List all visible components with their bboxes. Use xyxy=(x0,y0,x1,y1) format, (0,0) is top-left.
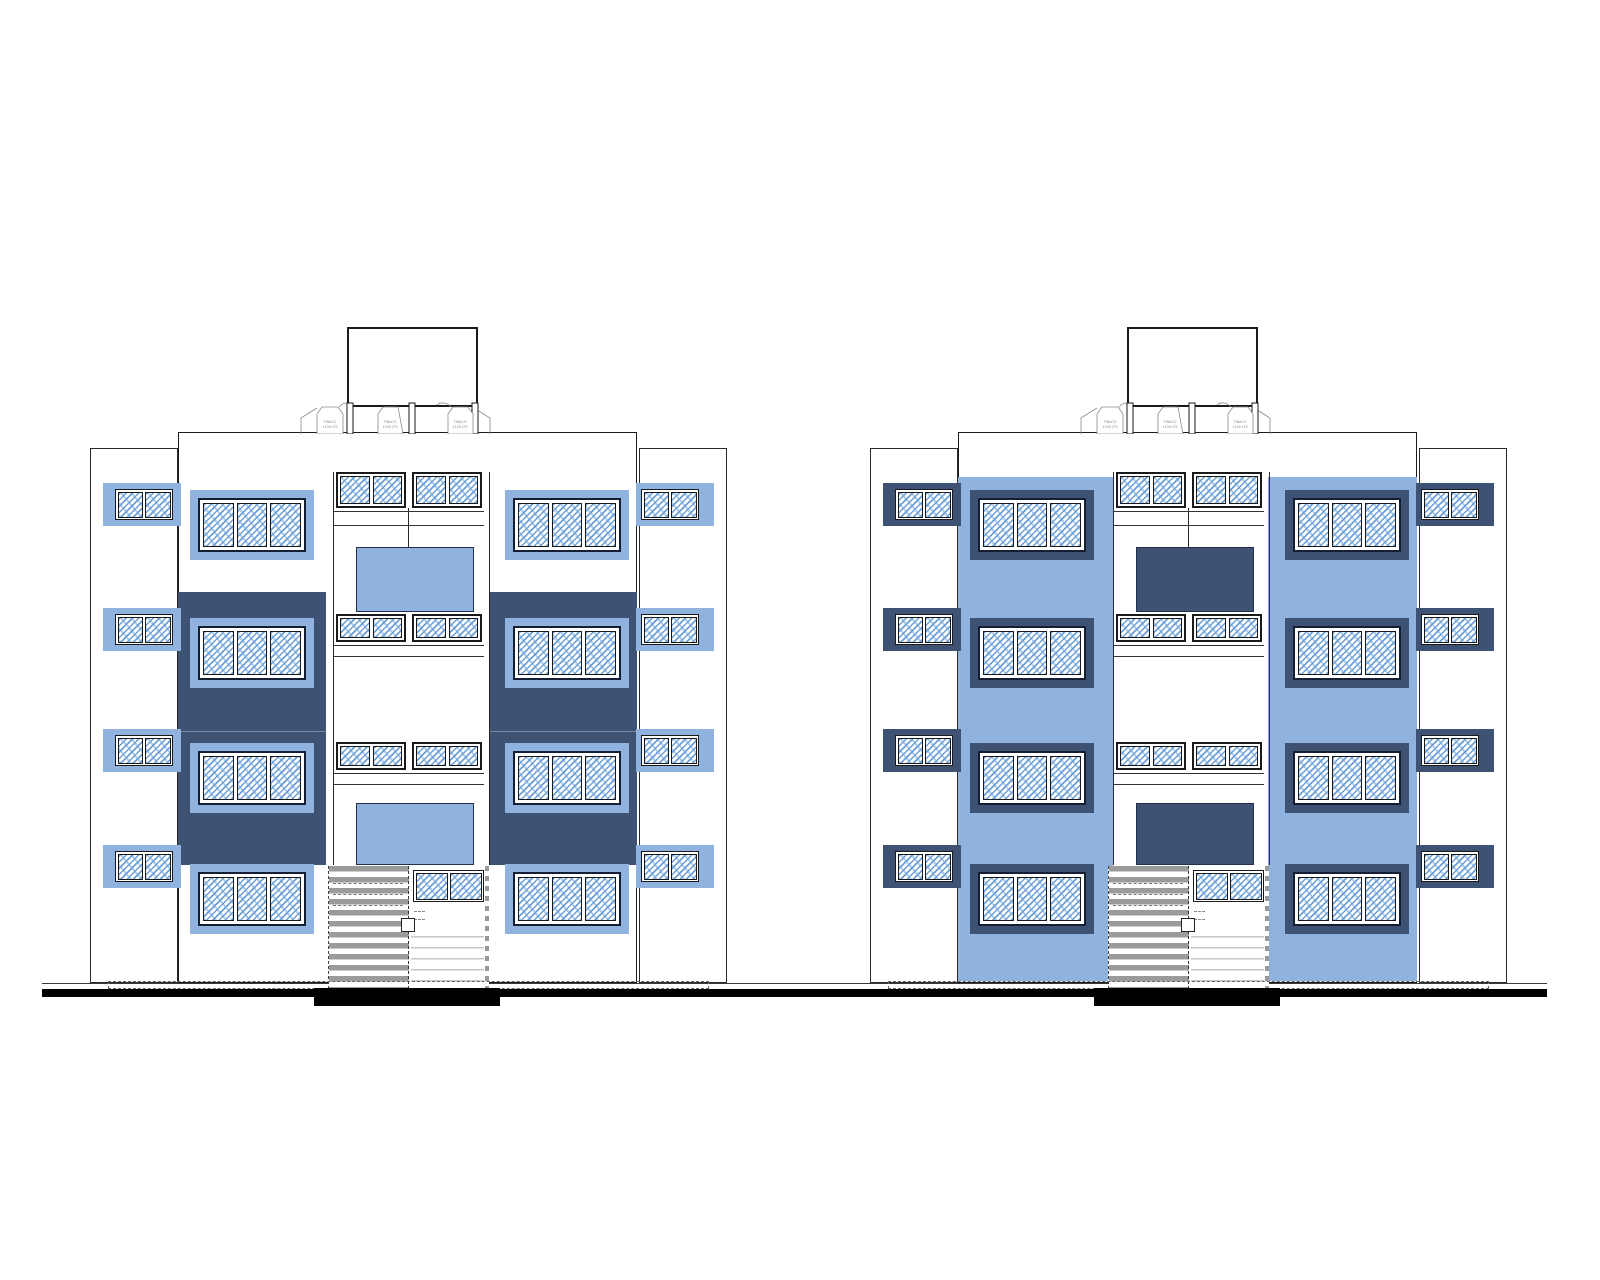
spandrel-panel xyxy=(1136,803,1254,865)
wing-window xyxy=(1421,489,1479,520)
tank-shoulder-left xyxy=(1081,408,1097,434)
window-pane xyxy=(585,756,616,800)
window-pane xyxy=(671,492,697,518)
window-frame xyxy=(1293,498,1401,552)
window-pane xyxy=(1365,631,1396,675)
window-pane xyxy=(270,503,301,547)
window-pane xyxy=(552,631,583,675)
window-pane xyxy=(270,631,301,675)
tank-shoulder-left xyxy=(301,408,317,434)
window-pane xyxy=(1017,631,1048,675)
window-pane xyxy=(1229,476,1259,504)
tank-label: TINACO xyxy=(323,420,337,424)
window-pane xyxy=(925,738,951,764)
sign-post xyxy=(347,403,353,434)
entrance-footing xyxy=(1094,988,1280,1006)
stair-sill-line xyxy=(334,784,484,785)
window-frame xyxy=(1293,872,1401,926)
window-pane xyxy=(1298,877,1329,921)
window-pane xyxy=(1229,618,1259,638)
gate-dash-line xyxy=(1194,911,1205,912)
window-pane xyxy=(518,756,549,800)
wing-window xyxy=(115,614,173,645)
stair-window xyxy=(1192,472,1262,508)
window-pane xyxy=(145,854,171,880)
window-pane xyxy=(898,492,924,518)
vent-pipe-icon xyxy=(1217,403,1231,407)
window-frame xyxy=(978,872,1086,926)
water-tank-platform: TINACO 1100 LTS TINACO 1100 LTS TINACO 1… xyxy=(1078,400,1274,434)
water-tank: TINACO 1100 LTS xyxy=(448,407,473,434)
window-pane xyxy=(237,631,268,675)
stair-sill-line xyxy=(1114,525,1264,526)
gate-service-leaf xyxy=(409,866,489,989)
window-pane xyxy=(203,756,234,800)
wing-window xyxy=(1421,851,1479,882)
wing-window xyxy=(641,735,699,766)
gate-service-leaf xyxy=(1189,866,1269,989)
gate-dash-line xyxy=(1113,894,1183,895)
window-pane xyxy=(203,631,234,675)
stair-window xyxy=(412,742,482,770)
window-pane xyxy=(449,476,479,504)
window-pane xyxy=(449,618,479,638)
large-window xyxy=(190,743,314,813)
window-pane xyxy=(1050,877,1081,921)
stair-window xyxy=(412,614,482,642)
stair-shaft-mullion xyxy=(408,508,409,548)
window-pane xyxy=(449,746,479,766)
large-window xyxy=(190,490,314,560)
stair-sill-line xyxy=(334,525,484,526)
window-pane xyxy=(898,738,924,764)
gate-dash-line xyxy=(333,883,403,884)
window-pane xyxy=(898,617,924,643)
spandrel-panel xyxy=(1136,547,1254,612)
spandrel-panel xyxy=(356,803,474,865)
vent-pipe-icon xyxy=(437,403,451,407)
wing-window xyxy=(641,614,699,645)
window-pane xyxy=(450,873,482,900)
wing-window-panel xyxy=(103,483,181,526)
stair-window xyxy=(336,472,406,508)
window-pane xyxy=(983,756,1014,800)
wing-window xyxy=(1421,735,1479,766)
window-frame xyxy=(978,626,1086,680)
wing-window xyxy=(115,489,173,520)
wing-window-panel xyxy=(1416,483,1494,526)
gate-dash-line xyxy=(1113,905,1183,906)
stair-sill-line xyxy=(1114,511,1264,512)
stair-sill-line xyxy=(1114,656,1264,657)
window-pane xyxy=(340,618,370,638)
window-pane xyxy=(644,617,670,643)
tank-label: 1100 LTS xyxy=(382,425,397,429)
gate-dash-line xyxy=(333,894,403,895)
window-pane xyxy=(416,873,448,900)
large-window xyxy=(1285,490,1409,560)
stair-sill-line xyxy=(1114,784,1264,785)
left-wing-tower xyxy=(870,448,958,983)
wing-window-panel xyxy=(636,483,714,526)
window-pane xyxy=(340,746,370,766)
stair-sill-line xyxy=(334,645,484,646)
large-window xyxy=(1285,864,1409,934)
window-pane xyxy=(1451,492,1477,518)
window-pane xyxy=(898,854,924,880)
window-pane xyxy=(518,877,549,921)
stair-sill-line xyxy=(334,656,484,657)
wing-window-panel xyxy=(883,845,961,888)
wing-window-panel xyxy=(883,608,961,651)
building-left-elevation: TINACO 1100 LTS TINACO 1100 LTS TINACO 1… xyxy=(90,432,727,983)
stair-window xyxy=(1116,742,1186,770)
window-pane xyxy=(373,618,403,638)
wing-window-panel xyxy=(1416,608,1494,651)
gate-dash-line xyxy=(414,919,425,920)
tank-label: TINACO xyxy=(1103,420,1117,424)
window-pane xyxy=(203,877,234,921)
tank-label: 1100 LTS xyxy=(1162,425,1177,429)
water-tank: TINACO 1100 LTS xyxy=(317,407,343,434)
window-pane xyxy=(1229,746,1259,766)
stair-window xyxy=(1192,742,1262,770)
window-pane xyxy=(1451,854,1477,880)
gate-slat-lines xyxy=(411,936,484,986)
large-window xyxy=(505,618,629,688)
wing-window-panel xyxy=(103,845,181,888)
large-window xyxy=(970,490,1094,560)
wing-window-panel xyxy=(103,608,181,651)
window-pane xyxy=(1365,503,1396,547)
gate-louver-leaf xyxy=(1109,866,1189,989)
water-tank: TINACO 1100 LTS xyxy=(378,407,403,434)
tank-label: 1100 LTS xyxy=(1102,425,1117,429)
window-pane xyxy=(1153,476,1183,504)
gate-handle xyxy=(401,918,415,932)
large-window xyxy=(970,743,1094,813)
gate-dash-line xyxy=(1194,919,1205,920)
left-wing-tower xyxy=(90,448,178,983)
water-tank: TINACO 1100 LTS xyxy=(1158,407,1183,434)
entrance-gate xyxy=(328,866,488,989)
window-pane xyxy=(585,877,616,921)
window-pane xyxy=(1153,618,1183,638)
wing-window xyxy=(115,735,173,766)
window-pane xyxy=(671,854,697,880)
gate-slat-lines xyxy=(1191,936,1264,986)
window-pane xyxy=(552,756,583,800)
large-window xyxy=(190,864,314,934)
window-pane xyxy=(1017,756,1048,800)
gate-handle xyxy=(1181,918,1195,932)
window-pane xyxy=(1424,854,1450,880)
window-pane xyxy=(1332,877,1363,921)
window-pane xyxy=(518,631,549,675)
window-pane xyxy=(373,476,403,504)
water-tank: TINACO 1100 LTS xyxy=(1228,407,1253,434)
tank-label: TINACO xyxy=(453,420,467,424)
entrance-gate xyxy=(1108,866,1268,989)
large-window xyxy=(970,618,1094,688)
window-pane xyxy=(145,492,171,518)
window-pane xyxy=(983,503,1014,547)
window-pane xyxy=(644,492,670,518)
window-pane xyxy=(1196,476,1226,504)
window-pane xyxy=(1424,492,1450,518)
stair-shaft-mullion xyxy=(1188,508,1189,548)
window-frame xyxy=(513,872,621,926)
large-window xyxy=(1285,618,1409,688)
elevation-sheet: TINACO 1100 LTS TINACO 1100 LTS TINACO 1… xyxy=(0,0,1600,1280)
tank-label: 1100 LTS xyxy=(322,425,337,429)
window-pane xyxy=(1332,631,1363,675)
wing-window-panel xyxy=(883,483,961,526)
window-pane xyxy=(1120,618,1150,638)
window-pane xyxy=(925,617,951,643)
window-pane xyxy=(518,503,549,547)
window-pane xyxy=(1196,746,1226,766)
window-pane xyxy=(1365,756,1396,800)
window-pane xyxy=(983,877,1014,921)
window-pane xyxy=(644,854,670,880)
gate-window xyxy=(413,870,484,902)
stair-window xyxy=(1192,614,1262,642)
stair-window xyxy=(412,472,482,508)
window-pane xyxy=(373,746,403,766)
tank-label: TINACO xyxy=(1163,420,1177,424)
window-pane xyxy=(1050,631,1081,675)
window-pane xyxy=(118,617,144,643)
wing-window xyxy=(1421,614,1479,645)
large-window xyxy=(1285,743,1409,813)
stair-window xyxy=(1116,614,1186,642)
wing-window xyxy=(895,851,953,882)
window-pane xyxy=(1230,873,1262,900)
wing-window xyxy=(115,851,173,882)
ground-line-thick xyxy=(42,989,1547,997)
right-wing-tower xyxy=(1419,448,1507,983)
gate-edge-strip xyxy=(485,866,489,989)
window-pane xyxy=(1050,756,1081,800)
building-right-elevation: TINACO 1100 LTS TINACO 1100 LTS TINACO 1… xyxy=(870,432,1507,983)
window-pane xyxy=(925,854,951,880)
wing-window-panel xyxy=(1416,845,1494,888)
window-pane xyxy=(671,738,697,764)
window-frame xyxy=(978,498,1086,552)
wing-window xyxy=(641,489,699,520)
rooftop-sign xyxy=(347,327,478,407)
large-window xyxy=(970,864,1094,934)
window-frame xyxy=(513,626,621,680)
stair-sill-line xyxy=(1114,773,1264,774)
wing-window-panel xyxy=(103,729,181,772)
window-pane xyxy=(585,503,616,547)
tank-label: TINACO xyxy=(383,420,397,424)
window-pane xyxy=(1196,618,1226,638)
entrance-footing xyxy=(314,988,500,1006)
large-window xyxy=(505,490,629,560)
wing-window-panel xyxy=(636,608,714,651)
window-pane xyxy=(1196,873,1228,900)
wing-window xyxy=(895,489,953,520)
gate-edge-strip xyxy=(1265,866,1269,989)
window-pane xyxy=(671,617,697,643)
window-frame xyxy=(513,751,621,805)
stair-sill-line xyxy=(334,773,484,774)
window-pane xyxy=(270,877,301,921)
window-pane xyxy=(1451,617,1477,643)
stair-sill-line xyxy=(1114,645,1264,646)
water-tank-platform: TINACO 1100 LTS TINACO 1100 LTS TINACO 1… xyxy=(298,400,494,434)
water-tank: TINACO 1100 LTS xyxy=(1097,407,1123,434)
window-frame xyxy=(1293,626,1401,680)
window-pane xyxy=(1017,503,1048,547)
wing-window xyxy=(641,851,699,882)
window-frame xyxy=(198,626,306,680)
sign-post xyxy=(1127,403,1133,434)
window-pane xyxy=(270,756,301,800)
sign-post xyxy=(1189,403,1195,434)
gate-dash-line xyxy=(414,911,425,912)
sign-post xyxy=(409,403,415,434)
stair-window xyxy=(336,614,406,642)
window-pane xyxy=(237,503,268,547)
window-pane xyxy=(983,631,1014,675)
window-pane xyxy=(552,877,583,921)
large-window xyxy=(505,864,629,934)
window-pane xyxy=(118,492,144,518)
gate-louver-leaf xyxy=(329,866,409,989)
window-pane xyxy=(1120,476,1150,504)
window-pane xyxy=(1050,503,1081,547)
window-pane xyxy=(1298,503,1329,547)
window-pane xyxy=(1365,877,1396,921)
right-wing-tower xyxy=(639,448,727,983)
window-frame xyxy=(198,498,306,552)
wing-window-panel xyxy=(636,729,714,772)
window-frame xyxy=(198,872,306,926)
window-pane xyxy=(1424,617,1450,643)
window-pane xyxy=(416,476,446,504)
gate-window xyxy=(1193,870,1264,902)
stair-window xyxy=(336,742,406,770)
window-pane xyxy=(416,618,446,638)
window-pane xyxy=(1298,631,1329,675)
window-pane xyxy=(925,492,951,518)
wing-window-panel xyxy=(883,729,961,772)
window-pane xyxy=(644,738,670,764)
gate-dash-line xyxy=(1113,883,1183,884)
window-pane xyxy=(118,854,144,880)
window-frame xyxy=(978,751,1086,805)
window-pane xyxy=(1153,746,1183,766)
window-pane xyxy=(1451,738,1477,764)
window-frame xyxy=(1293,751,1401,805)
window-frame xyxy=(198,751,306,805)
window-pane xyxy=(585,631,616,675)
window-pane xyxy=(145,738,171,764)
window-frame xyxy=(513,498,621,552)
window-pane xyxy=(1298,756,1329,800)
wing-window xyxy=(895,614,953,645)
window-pane xyxy=(1332,503,1363,547)
tank-label: TINACO xyxy=(1233,420,1247,424)
spandrel-panel xyxy=(356,547,474,612)
window-pane xyxy=(203,503,234,547)
window-pane xyxy=(1017,877,1048,921)
window-pane xyxy=(340,476,370,504)
window-pane xyxy=(237,756,268,800)
wing-window-panel xyxy=(636,845,714,888)
large-window xyxy=(505,743,629,813)
window-pane xyxy=(1424,738,1450,764)
window-pane xyxy=(416,746,446,766)
window-pane xyxy=(237,877,268,921)
window-pane xyxy=(145,617,171,643)
wing-window-panel xyxy=(1416,729,1494,772)
window-pane xyxy=(118,738,144,764)
window-pane xyxy=(1332,756,1363,800)
stair-window xyxy=(1116,472,1186,508)
gate-dash-line xyxy=(333,905,403,906)
rooftop-sign xyxy=(1127,327,1258,407)
stair-sill-line xyxy=(334,511,484,512)
tank-label: 1100 LTS xyxy=(452,425,467,429)
wing-window xyxy=(895,735,953,766)
window-pane xyxy=(552,503,583,547)
large-window xyxy=(190,618,314,688)
tank-label: 1100 LTS xyxy=(1232,425,1247,429)
window-pane xyxy=(1120,746,1150,766)
